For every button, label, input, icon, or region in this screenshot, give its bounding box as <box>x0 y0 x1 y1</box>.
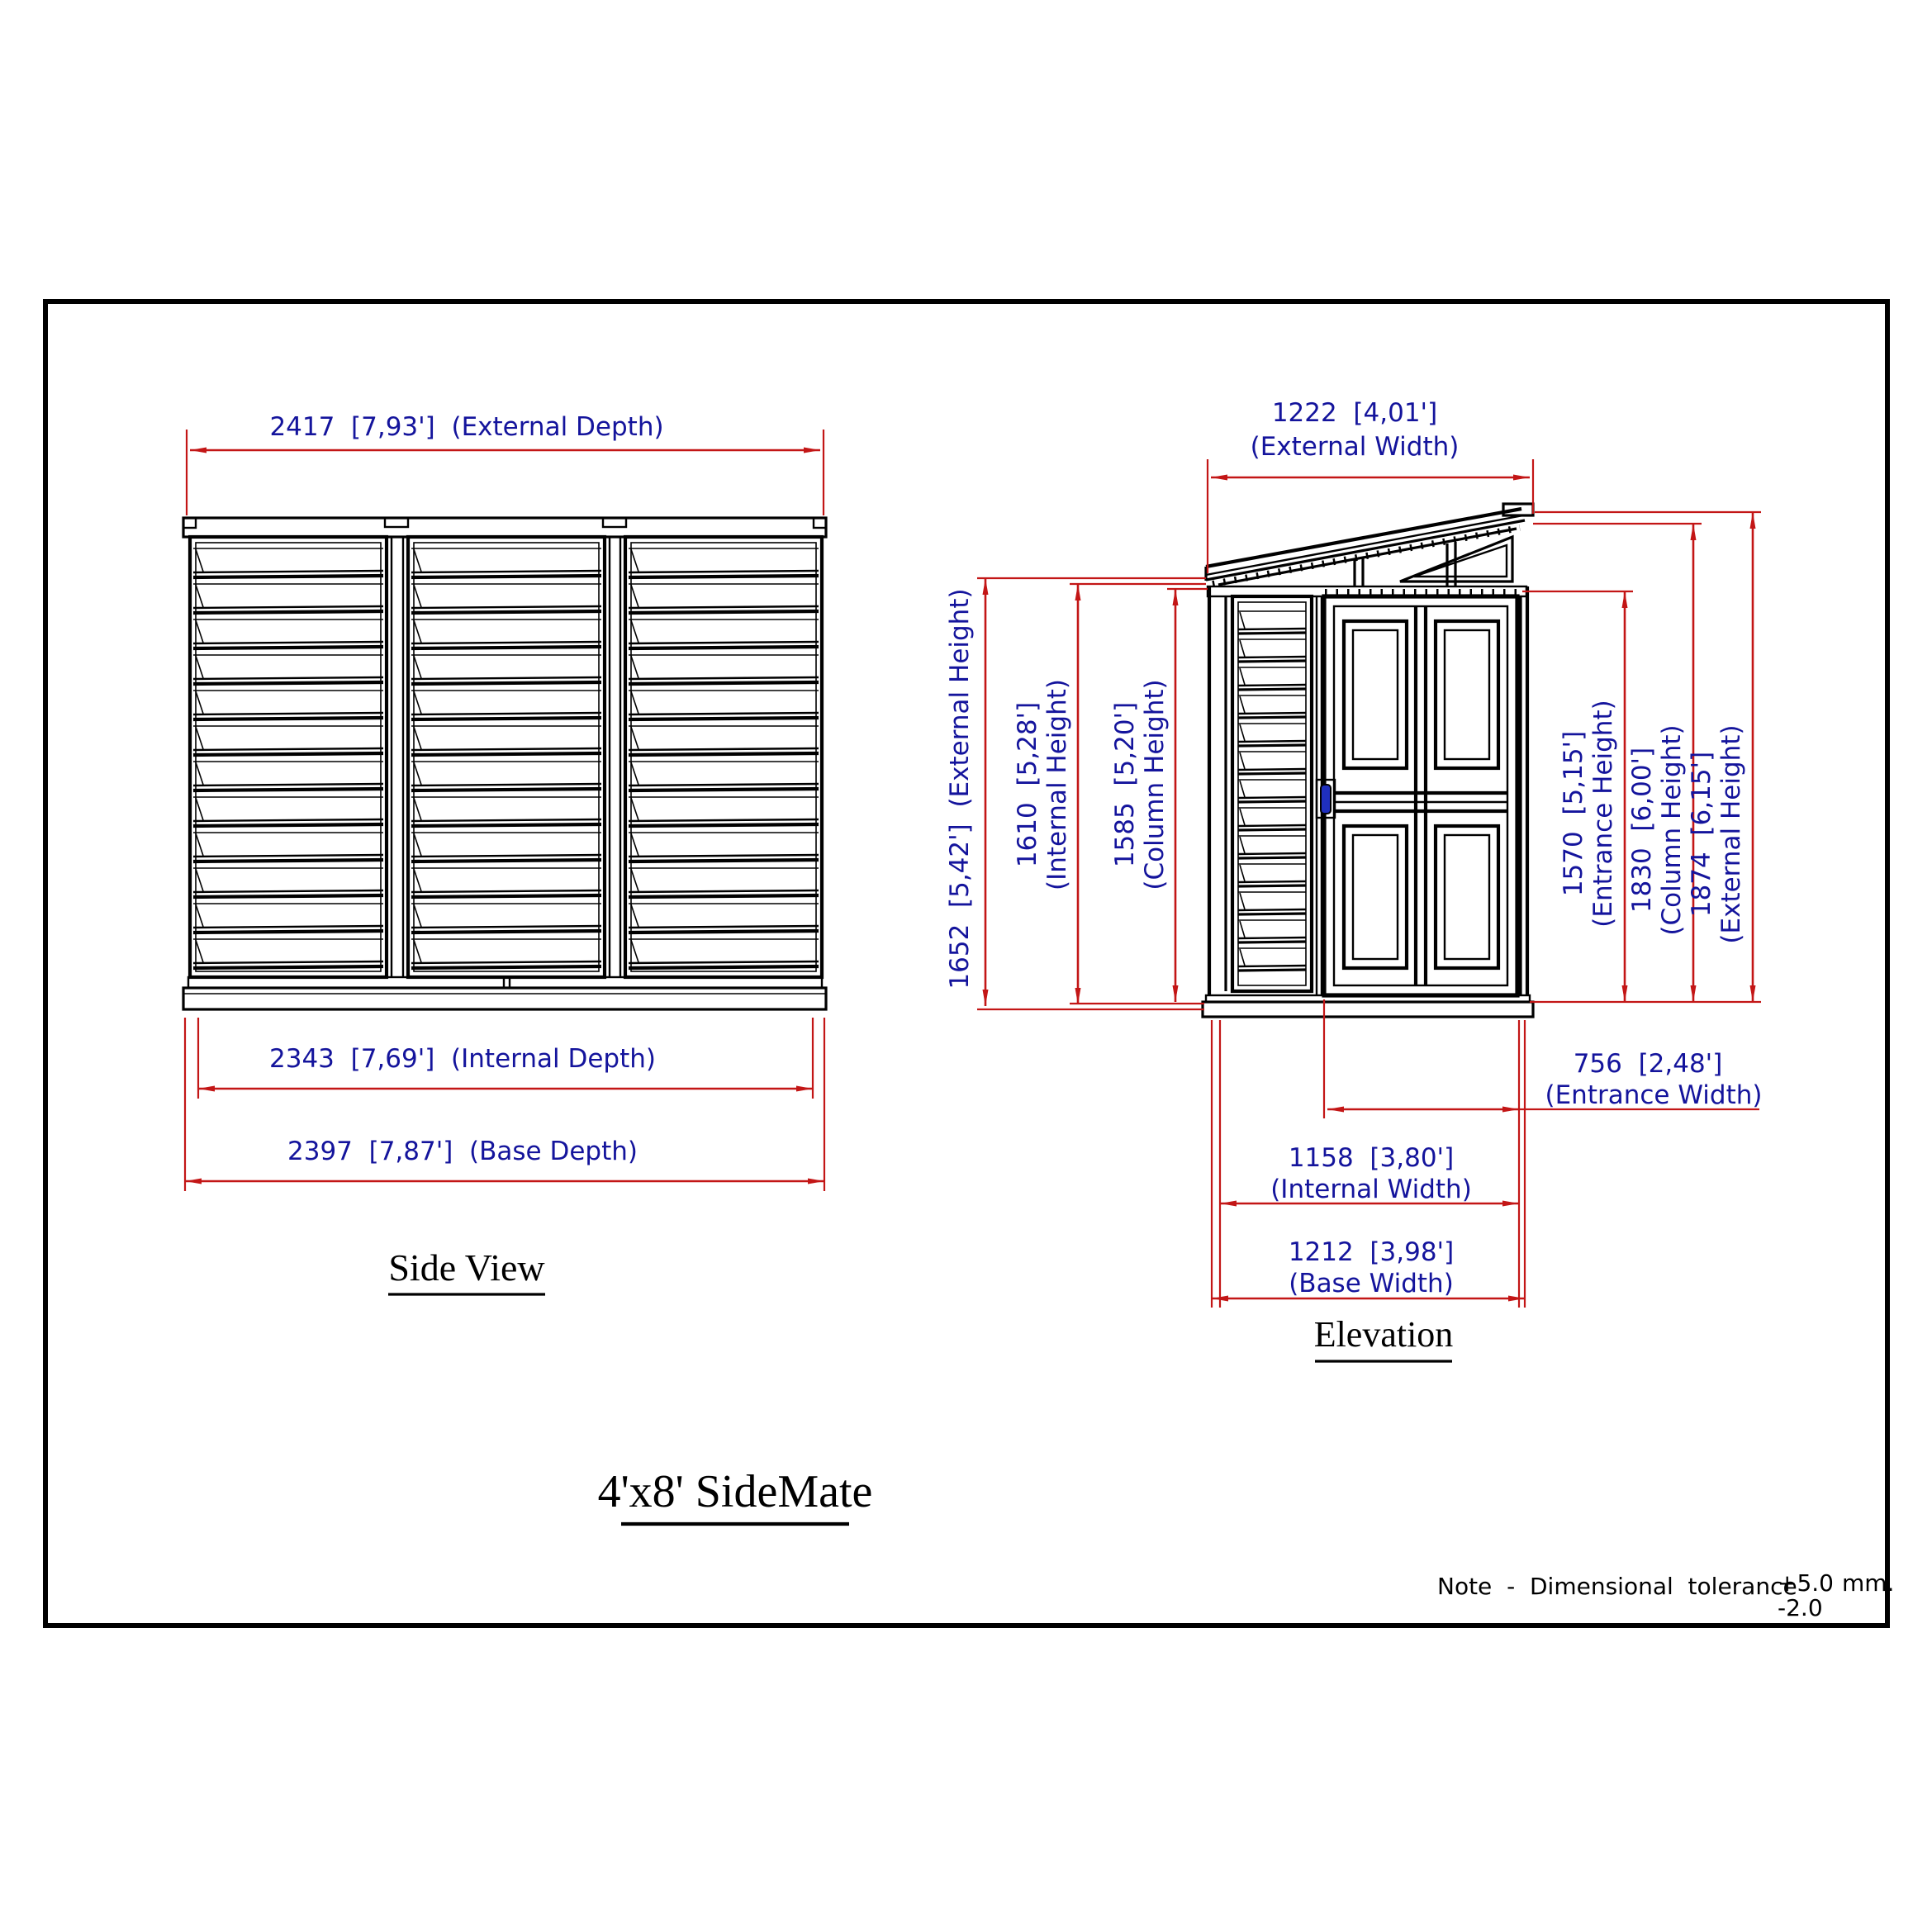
tolerance-plus: +5.0 <box>1778 1569 1834 1597</box>
label-column-height-left-name: (Column Height) <box>1140 679 1170 890</box>
label-external-height-left: 1652 [5,42'] (External Height) <box>945 588 975 989</box>
label-internal-width-value: 1158 [3,80'] <box>1289 1143 1454 1173</box>
label-column-height-right-name: (Column Height) <box>1657 724 1687 935</box>
label-external-depth: 2417 [7,93'] (External Depth) <box>269 412 663 442</box>
label-entrance-height-name: (Entrance Height) <box>1588 700 1618 927</box>
label-external-width-value: 1222 [4,01'] <box>1272 398 1437 428</box>
label-entrance-height-value: 1570 [5,15'] <box>1559 731 1588 896</box>
label-base-width-name: (Base Width) <box>1289 1269 1454 1298</box>
label-entrance-width-value: 756 [2,48'] <box>1574 1049 1723 1079</box>
elevation-title: Elevation <box>1314 1314 1454 1355</box>
label-internal-height-name: (Internal Height) <box>1042 679 1072 890</box>
label-entrance-width-name: (Entrance Width) <box>1545 1080 1762 1110</box>
label-external-width-name: (External Width) <box>1251 432 1460 462</box>
label-external-height-right-value: 1874 [6,15'] <box>1687 752 1716 917</box>
label-internal-height-value: 1610 [5,28'] <box>1013 702 1042 867</box>
label-internal-depth: 2343 [7,69'] (Internal Depth) <box>269 1044 656 1074</box>
label-base-depth: 2397 [7,87'] (Base Depth) <box>287 1137 638 1166</box>
label-column-height-left-value: 1585 [5,20'] <box>1110 702 1140 867</box>
drawing-title: 4'x8' SideMate <box>598 1466 873 1517</box>
tolerance-minus: -2.0 <box>1778 1594 1823 1621</box>
label-base-width-value: 1212 [3,98'] <box>1289 1237 1454 1267</box>
tolerance-note: Note - Dimensional tolerance <box>1437 1573 1797 1600</box>
drawing-sheet: 2417 [7,93'] (External Depth) 2343 [7,69… <box>0 0 1932 1932</box>
tolerance-unit: mm. <box>1842 1569 1894 1597</box>
label-external-height-right-name: (External Height) <box>1716 724 1746 943</box>
side-view-title: Side View <box>388 1246 545 1289</box>
label-column-height-right-value: 1830 [6,00'] <box>1627 748 1657 913</box>
shed-technical-drawing: 2417 [7,93'] (External Depth) 2343 [7,69… <box>0 0 1932 1932</box>
label-internal-width-name: (Internal Width) <box>1270 1175 1472 1204</box>
